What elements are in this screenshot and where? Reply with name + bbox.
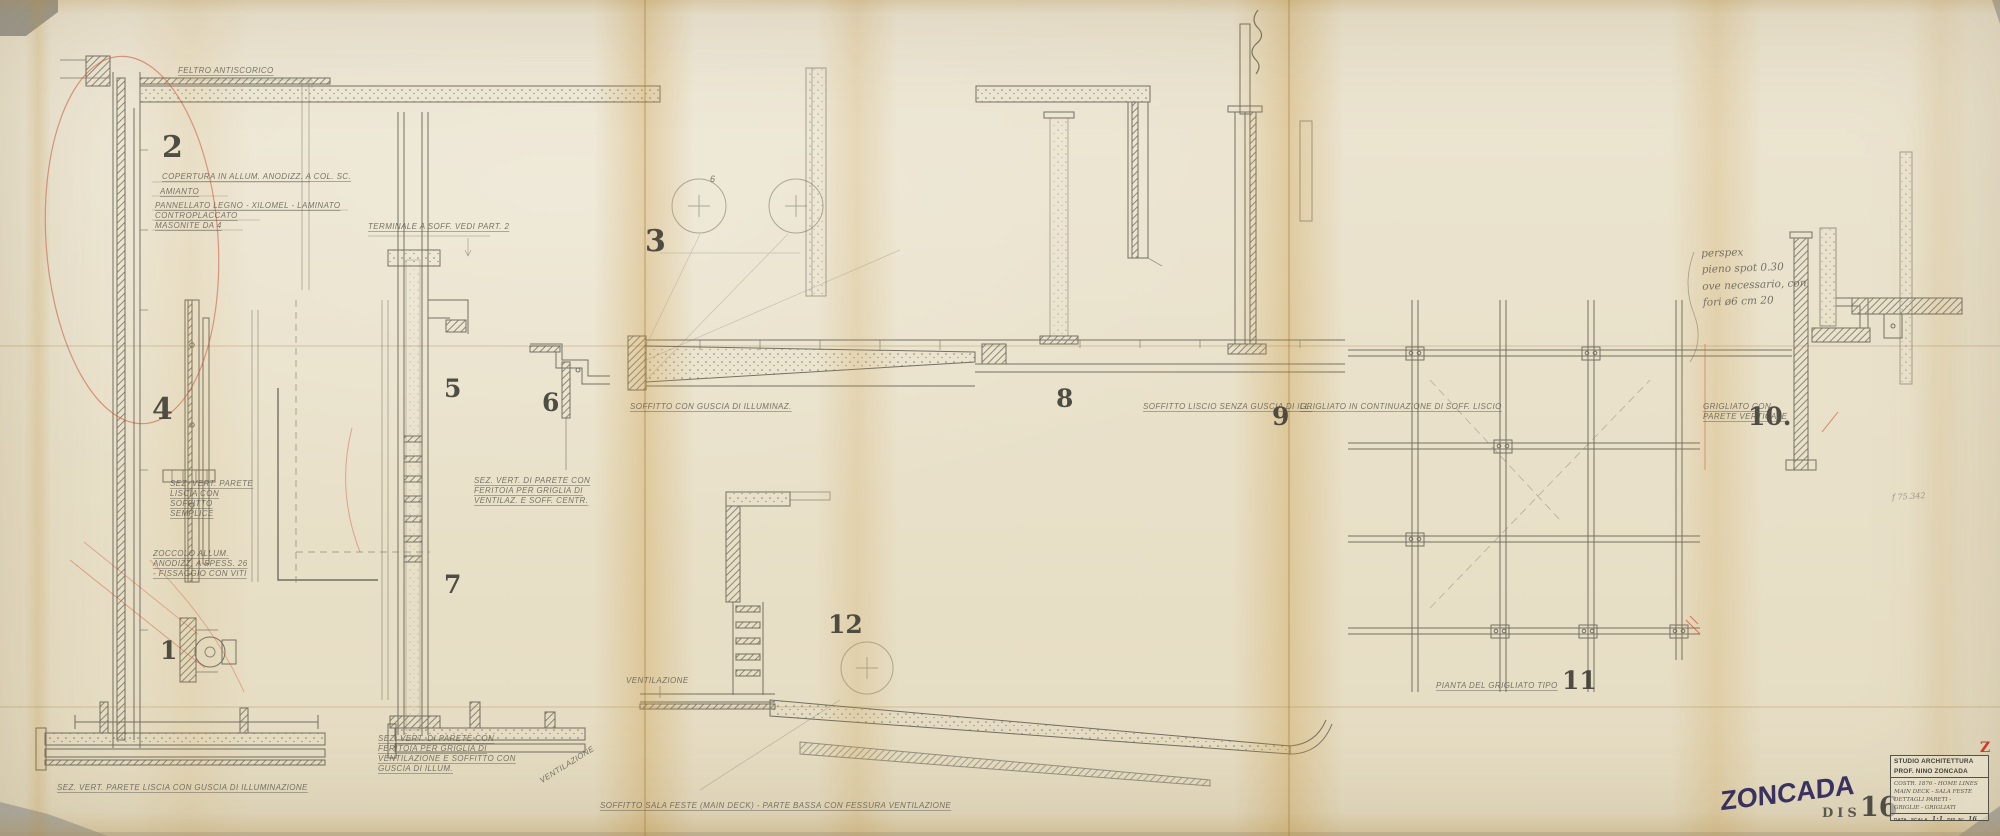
- annotation-grigliato-parete: GRIGLIATO CON PARETE VERTICALE: [1703, 402, 1799, 422]
- detail-3-drawing: [646, 68, 900, 380]
- detail-number-3: 3: [645, 224, 666, 259]
- title-block: STUDIO ARCHITETTURA PROF. NINO ZONCADA C…: [1890, 755, 1989, 821]
- drawing-linework: [0, 0, 2000, 836]
- dis-stamp-label: DIS: [1822, 806, 1861, 821]
- detail-number-1: 1: [160, 636, 177, 665]
- detail-12-drawing: [640, 492, 1332, 790]
- detail-number-8: 8: [1056, 384, 1073, 413]
- title-block-job-description: COSTR. 1876 - HOME LINES MAIN DECK - SAL…: [1894, 780, 1985, 812]
- annotation-sez-feritoia-presa: SEZ. VERT. DI PARETE CON FERITOIA PER GR…: [474, 476, 596, 506]
- red-check-mark: Z: [1980, 740, 1990, 756]
- annotation-sez-feritoia-griglia: SEZ. VERT. DI PARETE CON FERITOIA PER GR…: [378, 734, 518, 774]
- detail-11-grid-drawing: [1348, 300, 1700, 692]
- title-block-studio-line2: PROF. NINO ZONCADA: [1894, 768, 1985, 777]
- red-pencil-marks: [33, 50, 1838, 692]
- annotation-amianto: AMIANTO: [160, 187, 199, 197]
- annotation-soffitto-liscio: SOFFITTO LISCIO SENZA GUSCIA DI ILL.: [1143, 402, 1312, 412]
- detail-number-12: 12: [828, 610, 863, 639]
- annotation-pianta-grigliato: PIANTA DEL GRIGLIATO TIPO: [1436, 681, 1558, 691]
- annotation-soffitto-sala: SOFFITTO SALA FESTE (MAIN DECK) - PARTE …: [600, 801, 951, 811]
- annotation-ventilazione: VENTILAZIONE: [626, 676, 689, 686]
- annotation-guide-number: 6: [710, 174, 715, 185]
- annotation-zoccolo: ZOCCOLO ALLUM. ANODIZZ. A SPESS. 26 - FI…: [153, 549, 251, 579]
- annotation-pannellato: PANNELLATO LEGNO - XILOMEL - LAMINATO: [155, 201, 341, 211]
- title-block-disnp-value: 16: [1968, 816, 1977, 823]
- title-block-divider: [1891, 777, 1988, 778]
- detail-number-2: 2: [162, 130, 183, 165]
- annotation-feltro: FELTRO ANTISCORICO: [178, 66, 274, 76]
- annotation-controplaccato: CONTROPLACCATO: [155, 211, 238, 221]
- detail-1-drawing: [180, 618, 236, 682]
- floor-section-left: [36, 702, 325, 770]
- annotation-terminale: TERMINALE A SOFF. VEDI PART. 2: [368, 222, 509, 232]
- ceiling-section-drawing: [628, 106, 1345, 390]
- title-block-divider: [1891, 813, 1988, 814]
- title-block-job-line3: DETTAGLI PARETI -: [1894, 796, 1985, 804]
- title-block-disnp-label: DIS. N°: [1947, 817, 1964, 822]
- blueprint-sheet: 1 2 3 4 5 6 7 8 9 10. 11 12 FELTRO ANTIS…: [0, 0, 2000, 836]
- title-block-job-line2: MAIN DECK - SALA FESTE: [1894, 788, 1985, 796]
- title-block-footer: DATA SCALA 1:1 DIS. N° 16: [1894, 816, 1985, 823]
- detail-number-6: 6: [542, 388, 559, 417]
- title-block-job-line1: COSTR. 1876 - HOME LINES: [1894, 780, 1985, 788]
- annotation-grigliato-cont: GRIGLIATO IN CONTINUAZIONE DI SOFF. LISC…: [1300, 402, 1502, 412]
- title-block-data-label: DATA: [1894, 817, 1907, 822]
- detail-number-5: 5: [444, 374, 461, 403]
- annotation-masonite: MASONITE DA 4: [155, 221, 222, 231]
- detail-number-4: 4: [152, 392, 173, 427]
- handwritten-note: perspex pieno spot 0.30 ove necessario, …: [1701, 242, 1807, 311]
- scan-edges: [0, 0, 2000, 836]
- detail-number-7: 7: [444, 570, 461, 599]
- top-right-wall-drawing: [976, 10, 1312, 266]
- title-block-job-line4: GRIGLIE - GRIGLIATI: [1894, 804, 1985, 812]
- detail-10-drawing: [1688, 152, 1962, 470]
- title-block-scala-label: SCALA: [1911, 817, 1928, 822]
- title-block-scala-value: 1:1: [1932, 816, 1944, 823]
- detail-4-drawing: [163, 300, 430, 585]
- detail-number-11: 11: [1562, 666, 1597, 695]
- annotation-pencil-ref: f 75.342: [1892, 491, 1926, 502]
- annotation-sez-parete-liscia: SEZ. VERT. PARETE LISCIA CON SOFFITTO SE…: [170, 479, 254, 519]
- annotation-sez-guscia: SEZ. VERT. PARETE LISCIA CON GUSCIA DI I…: [57, 783, 308, 793]
- annotation-copertura: COPERTURA IN ALLUM. ANODIZZ. A COL. SC.: [162, 172, 351, 182]
- title-block-studio-line1: STUDIO ARCHITETTURA: [1894, 758, 1985, 768]
- annotation-soffitto-guscia: SOFFITTO CON GUSCIA DI ILLUMINAZ.: [630, 402, 792, 412]
